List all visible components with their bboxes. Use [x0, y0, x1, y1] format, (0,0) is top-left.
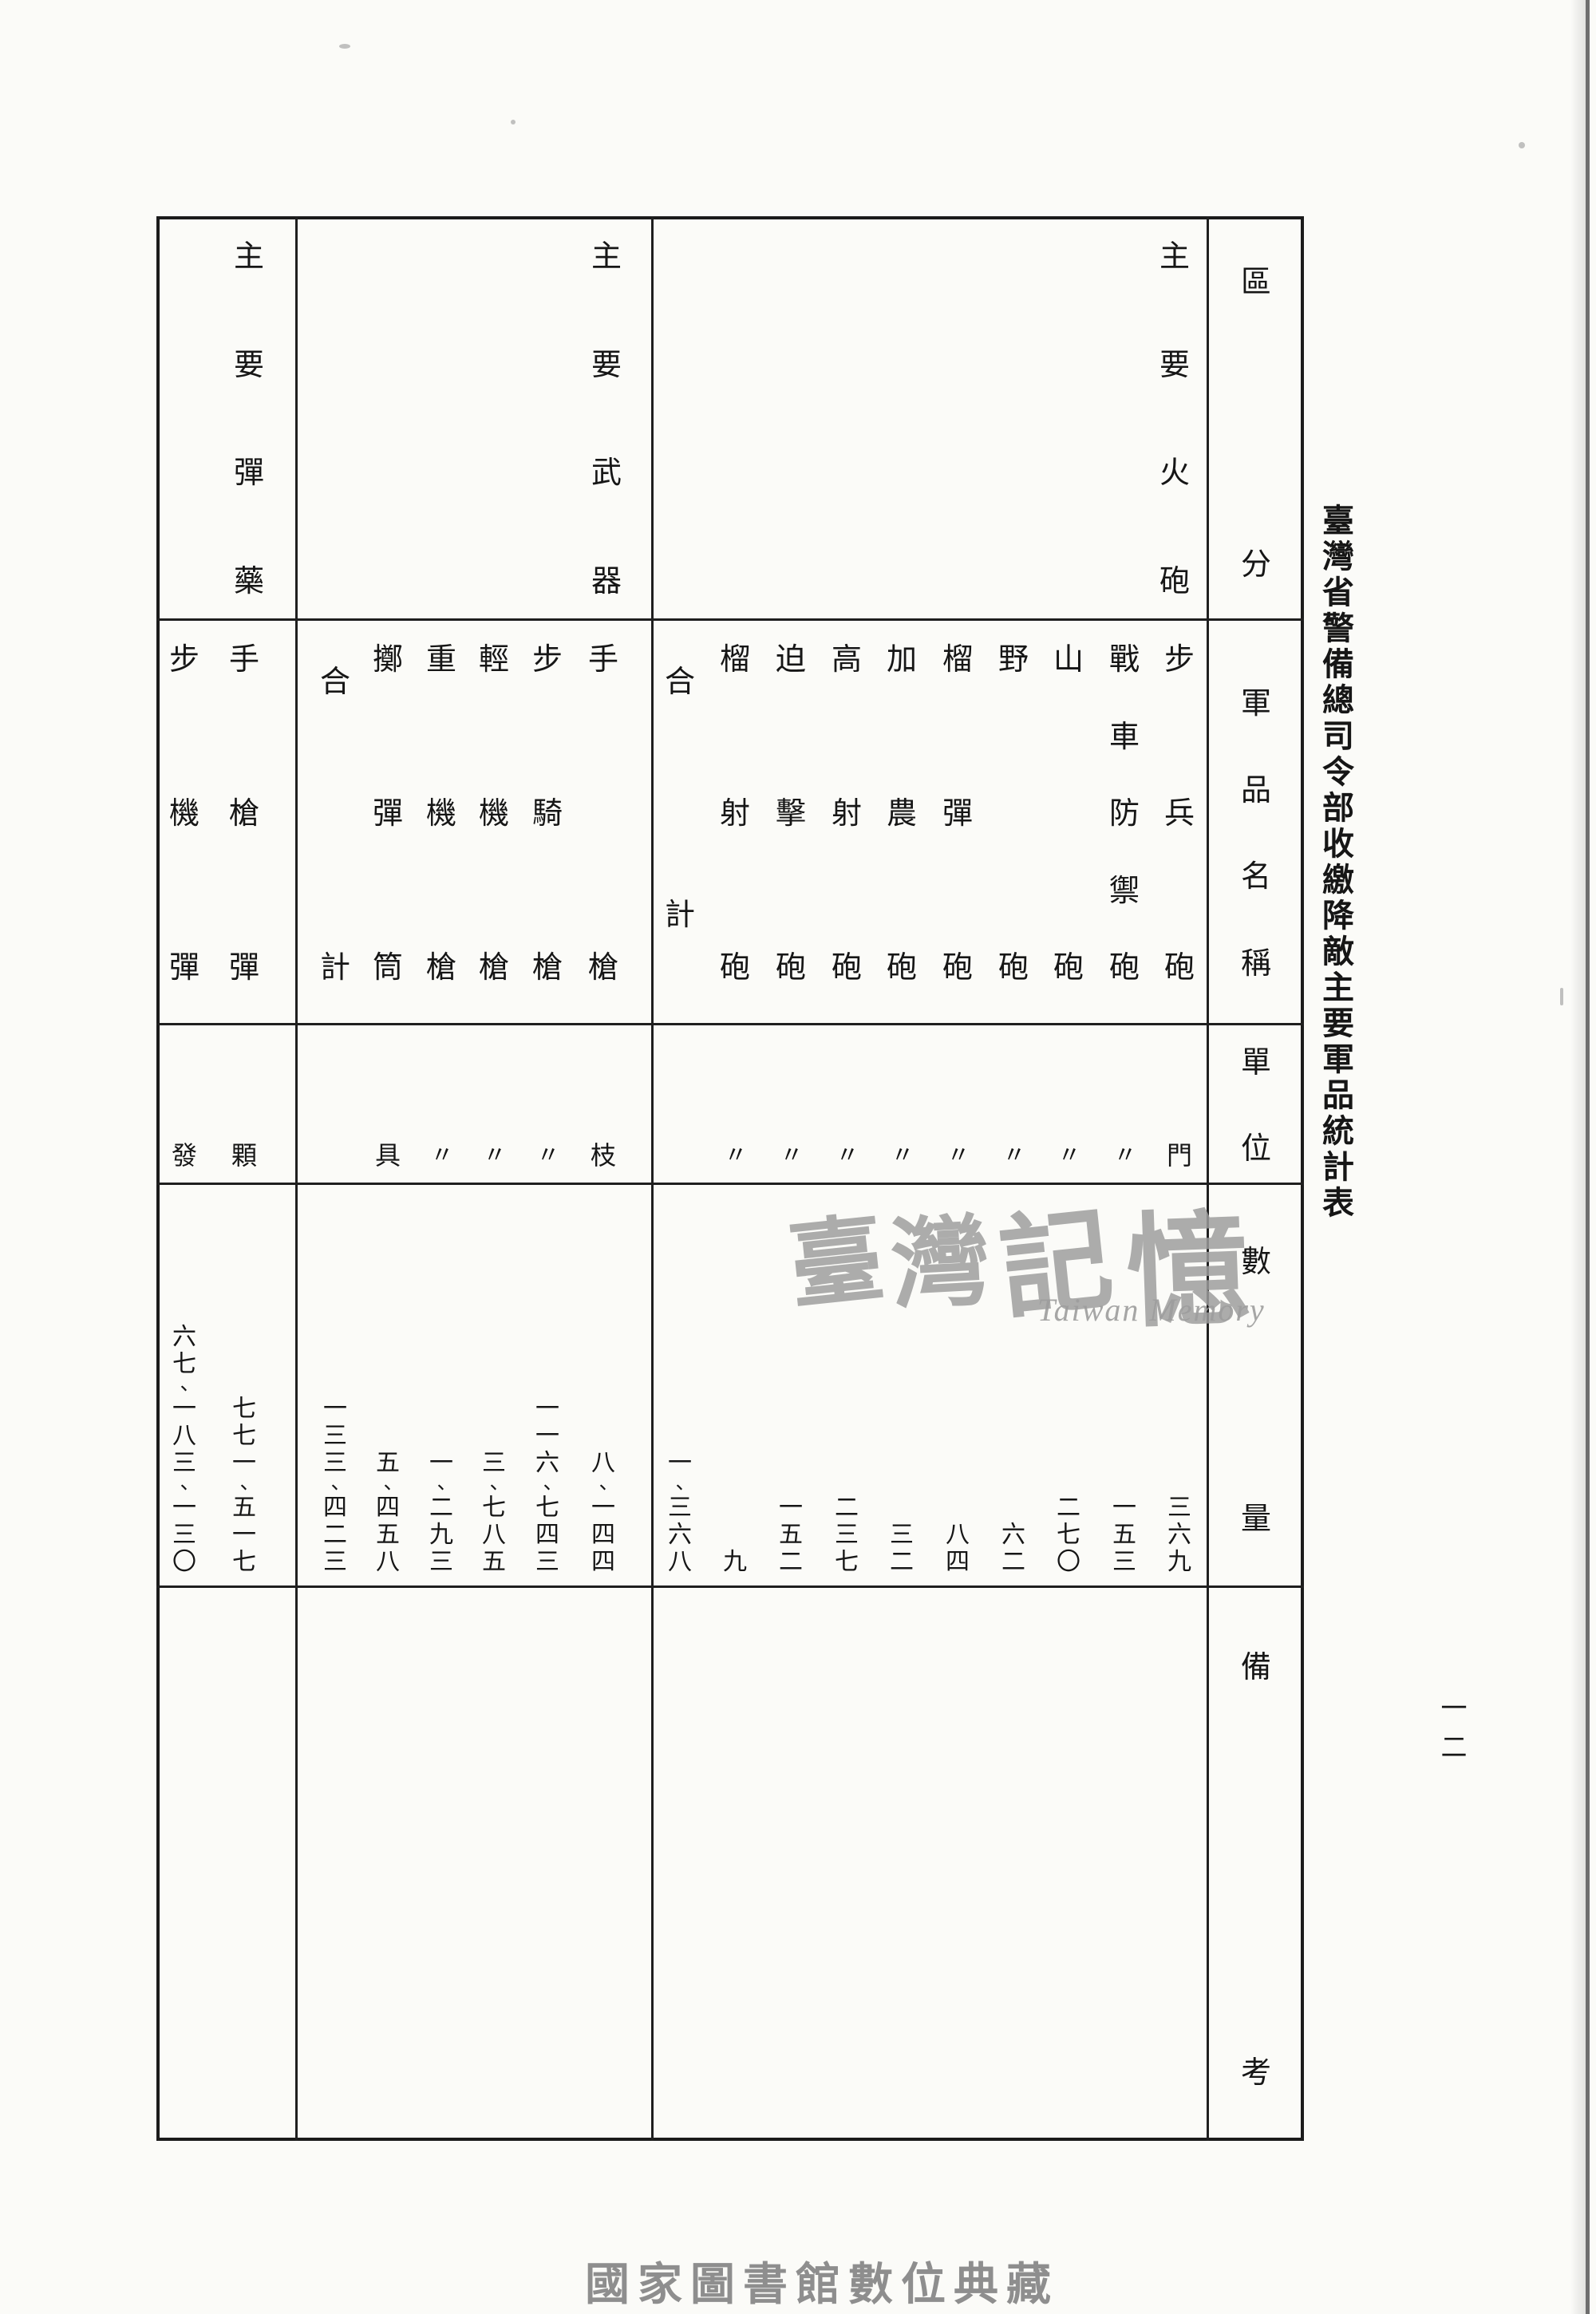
glyph: 計: [1322, 1149, 1354, 1185]
glyph: 手: [588, 645, 618, 675]
item-name: 山砲: [1051, 645, 1086, 983]
glyph: 數: [1241, 1246, 1271, 1278]
glyph: 兵: [1164, 799, 1195, 829]
glyph: 槍: [426, 953, 456, 983]
glyph: 彈: [229, 953, 259, 983]
item-name: 榴彈砲: [940, 645, 975, 983]
header-remarks: 備考: [1233, 1652, 1279, 2089]
glyph: 軍: [1322, 1041, 1354, 1077]
quantity: 一、三六八: [664, 1450, 696, 1576]
glyph: 砲: [1164, 953, 1195, 983]
quantity: 九: [719, 1549, 751, 1576]
unit-ditto-mark: 〃: [530, 1139, 565, 1171]
row-divider-category: [156, 618, 1304, 621]
glyph: 稱: [1241, 948, 1271, 980]
glyph: 彈: [942, 799, 973, 829]
glyph: 車: [1109, 722, 1140, 752]
glyph: 彈: [373, 799, 403, 829]
glyph: 槍: [479, 953, 509, 983]
group-label-weapons: 主要武器: [589, 242, 624, 597]
scan-speck: [511, 120, 516, 124]
glyph: 備: [1241, 1652, 1271, 1684]
glyph: 七: [232, 1396, 256, 1423]
glyph: 七: [482, 1495, 506, 1522]
glyph: 一: [1441, 1690, 1468, 1729]
unit-ditto-mark: 〃: [1107, 1139, 1142, 1171]
glyph: 器: [591, 567, 622, 597]
glyph: 省: [1322, 575, 1354, 610]
unit-mark: 門: [1162, 1139, 1197, 1171]
quantity: 六七、一八三、一三〇: [168, 1324, 200, 1576]
item-name: 擲彈筒: [370, 645, 405, 983]
glyph: 三: [1112, 1549, 1136, 1576]
glyph: 區: [1241, 267, 1271, 298]
glyph: 七: [232, 1423, 256, 1450]
glyph: 砲: [1109, 953, 1140, 983]
item-name: 迫擊砲: [773, 645, 808, 983]
glyph: 一: [232, 1522, 256, 1549]
item-name: 戰車防禦砲: [1107, 645, 1142, 983]
glyph: 、: [543, 1477, 563, 1495]
glyph: 武: [591, 458, 622, 488]
group-label-artillery: 主要火砲: [1157, 242, 1192, 597]
unit-ditto-mark: 〃: [424, 1139, 459, 1171]
row-divider-name: [156, 1023, 1304, 1025]
glyph: 八: [172, 1423, 196, 1450]
glyph: 軍: [1241, 688, 1271, 720]
glyph: 六: [1167, 1522, 1191, 1549]
unit-ditto-mark: 〃: [476, 1139, 512, 1171]
scan-speck: [1519, 142, 1525, 148]
column-divider: [1207, 216, 1209, 2141]
quantity: 三、七八五: [478, 1450, 510, 1576]
glyph: 榴: [720, 645, 750, 675]
glyph: 野: [998, 645, 1029, 675]
item-name: 野砲: [996, 645, 1031, 983]
item-name: 合計: [318, 667, 353, 983]
glyph: 令: [1322, 754, 1354, 790]
glyph: 槍: [532, 953, 563, 983]
glyph: 計: [665, 900, 695, 930]
quantity: 八四: [942, 1522, 974, 1576]
glyph: 四: [535, 1522, 559, 1549]
glyph: 五: [1112, 1522, 1136, 1549]
glyph: 槍: [588, 953, 618, 983]
glyph: 砲: [1053, 953, 1084, 983]
glyph: 六: [172, 1324, 196, 1351]
glyph: 五: [232, 1495, 256, 1522]
glyph: 要: [1322, 1005, 1354, 1041]
unit-ditto-mark: 〃: [884, 1139, 919, 1171]
glyph: 七: [1057, 1522, 1080, 1549]
item-name: 步騎槍: [530, 645, 565, 983]
row-divider-quantity: [156, 1585, 1304, 1588]
header-item-name: 軍品名稱: [1233, 688, 1279, 980]
glyph: 砲: [998, 953, 1029, 983]
glyph: 二: [323, 1522, 347, 1549]
glyph: 〇: [1057, 1549, 1080, 1576]
glyph: 七: [232, 1549, 256, 1576]
table-border: [156, 216, 1304, 2141]
glyph: 機: [479, 799, 509, 829]
glyph: 警: [1322, 610, 1354, 646]
group-label-ammunition: 主要彈藥: [231, 242, 267, 597]
unit-mark: 顆: [227, 1139, 262, 1171]
glyph: 騎: [532, 799, 563, 829]
unit-mark: 枝: [586, 1139, 621, 1171]
glyph: 擲: [373, 645, 403, 675]
glyph: 八: [668, 1549, 692, 1576]
glyph: 主: [234, 242, 264, 272]
glyph: 八: [482, 1522, 506, 1549]
glyph: 四: [376, 1495, 400, 1522]
glyph: 、: [239, 1477, 259, 1495]
glyph: 砲: [832, 953, 862, 983]
document-title: 臺灣省警備總司令部收繳降敵主要軍品統計表: [1320, 503, 1357, 1221]
item-name: 輕機槍: [476, 645, 512, 983]
glyph: 禦: [1109, 876, 1140, 906]
item-name: 步兵砲: [1162, 645, 1197, 983]
scan-speck: [339, 44, 350, 49]
glyph: 四: [591, 1522, 615, 1549]
item-name: 高射砲: [829, 645, 864, 983]
glyph: 九: [429, 1522, 453, 1549]
quantity: 五、四五八: [372, 1450, 404, 1576]
glyph: 砲: [942, 953, 973, 983]
quantity: 七七一、五一七: [228, 1396, 260, 1576]
unit-mark: 發: [167, 1139, 202, 1171]
glyph: 二: [1441, 1729, 1468, 1768]
item-name: 合計: [662, 667, 697, 930]
glyph: 要: [1159, 350, 1190, 381]
unit-ditto-mark: 〃: [717, 1139, 753, 1171]
glyph: 砲: [1159, 567, 1190, 597]
glyph: 合: [320, 667, 350, 697]
glyph: 司: [1322, 718, 1354, 754]
glyph: 、: [437, 1477, 456, 1495]
column-divider: [295, 216, 298, 2141]
item-name: 手槍: [586, 645, 621, 983]
glyph: 備: [1322, 646, 1354, 682]
glyph: 一: [1112, 1495, 1136, 1522]
glyph: 三: [890, 1522, 914, 1549]
glyph: 繳: [1322, 862, 1354, 898]
item-name: 加農砲: [884, 645, 919, 983]
glyph: 九: [723, 1549, 747, 1576]
glyph: 四: [946, 1549, 970, 1576]
glyph: 、: [489, 1477, 509, 1495]
glyph: 臺: [1322, 503, 1354, 539]
quantity: 一五二: [775, 1495, 807, 1576]
glyph: 三: [429, 1549, 453, 1576]
item-name: 重機槍: [424, 645, 459, 983]
glyph: 、: [675, 1477, 695, 1495]
glyph: 加: [887, 645, 917, 675]
glyph: 防: [1109, 799, 1140, 829]
unit-ditto-mark: 〃: [773, 1139, 808, 1171]
glyph: 三: [535, 1549, 559, 1576]
glyph: 步: [169, 645, 199, 675]
glyph: 一: [779, 1495, 803, 1522]
quantity: 一三三、四二三: [319, 1396, 351, 1576]
glyph: 一: [172, 1495, 196, 1522]
glyph: 輕: [479, 645, 509, 675]
glyph: 機: [426, 799, 456, 829]
item-name: 步機彈: [167, 645, 202, 983]
glyph: 五: [376, 1522, 400, 1549]
column-divider: [651, 216, 654, 2141]
glyph: 一: [172, 1396, 196, 1423]
unit-ditto-mark: 〃: [996, 1139, 1031, 1171]
glyph: 重: [426, 645, 456, 675]
glyph: 高: [832, 645, 862, 675]
unit-ditto-mark: 〃: [829, 1139, 864, 1171]
quantity: 一、二九三: [425, 1450, 457, 1576]
header-category: 區分: [1233, 267, 1279, 581]
glyph: 要: [234, 350, 264, 381]
glyph: 二: [779, 1549, 803, 1576]
glyph: 六: [1001, 1522, 1025, 1549]
glyph: 彈: [169, 953, 199, 983]
glyph: 射: [832, 799, 862, 829]
glyph: 、: [383, 1477, 403, 1495]
glyph: 敵: [1322, 934, 1354, 969]
glyph: 、: [330, 1477, 350, 1495]
glyph: 一: [535, 1396, 559, 1423]
glyph: 戰: [1109, 645, 1140, 675]
quantity: 六二: [997, 1522, 1029, 1576]
glyph: 六: [668, 1522, 692, 1549]
glyph: 品: [1322, 1077, 1354, 1113]
glyph: 三: [668, 1495, 692, 1522]
glyph: 、: [180, 1378, 199, 1396]
quantity: 一一六、七四三: [531, 1396, 563, 1576]
glyph: 砲: [720, 953, 750, 983]
quantity: 一五三: [1108, 1495, 1140, 1576]
glyph: 要: [591, 350, 622, 381]
glyph: 九: [1167, 1549, 1191, 1576]
glyph: 降: [1322, 898, 1354, 934]
glyph: 三: [835, 1522, 859, 1549]
glyph: 部: [1322, 790, 1354, 826]
glyph: 七: [535, 1495, 559, 1522]
header-quantity: 數量: [1233, 1246, 1279, 1535]
glyph: 筒: [373, 953, 403, 983]
item-name: 手槍彈: [227, 645, 262, 983]
quantity: 二三七: [831, 1495, 863, 1576]
page-edge-line: [1586, 0, 1590, 2314]
glyph: 一: [591, 1495, 615, 1522]
quantity: 二七〇: [1053, 1495, 1084, 1576]
glyph: 農: [887, 799, 917, 829]
glyph: 七: [835, 1549, 859, 1576]
glyph: 手: [229, 645, 259, 675]
glyph: 計: [320, 953, 350, 983]
glyph: 主: [591, 242, 622, 272]
glyph: 擊: [776, 799, 806, 829]
glyph: 二: [1001, 1549, 1025, 1576]
glyph: 灣: [1322, 539, 1354, 575]
glyph: 、: [598, 1477, 618, 1495]
glyph: 八: [946, 1522, 970, 1549]
glyph: 藥: [234, 567, 264, 597]
header-unit: 單位: [1233, 1047, 1279, 1165]
glyph: 一: [323, 1396, 347, 1423]
glyph: 考: [1241, 2057, 1271, 2089]
unit-ditto-mark: 〃: [1051, 1139, 1086, 1171]
glyph: 〇: [172, 1549, 196, 1576]
glyph: 迫: [776, 645, 806, 675]
unit-ditto-mark: 〃: [940, 1139, 975, 1171]
glyph: 表: [1322, 1185, 1354, 1221]
glyph: 砲: [887, 953, 917, 983]
glyph: 步: [532, 645, 563, 675]
unit-mark: 具: [370, 1139, 405, 1171]
glyph: 位: [1241, 1133, 1271, 1165]
glyph: 三: [323, 1423, 347, 1450]
glyph: 、: [180, 1477, 199, 1495]
glyph: 主: [1159, 242, 1190, 272]
glyph: 三: [172, 1522, 196, 1549]
glyph: 射: [720, 799, 750, 829]
glyph: 總: [1322, 682, 1354, 718]
quantity: 八、一四四: [587, 1450, 619, 1576]
page-number: 一二: [1436, 1690, 1472, 1768]
glyph: 名: [1241, 861, 1271, 893]
quantity: 三二: [886, 1522, 918, 1576]
scan-speck: [1560, 988, 1563, 1005]
glyph: 步: [1164, 645, 1195, 675]
quantity: 三六九: [1163, 1495, 1195, 1576]
glyph: 四: [323, 1495, 347, 1522]
scanned-document-page: { "title": "臺灣省警備總司令部收繳降敵主要軍品統計表", "page…: [0, 0, 1596, 2314]
glyph: 一: [535, 1423, 559, 1450]
glyph: 二: [1057, 1495, 1080, 1522]
glyph: 三: [1167, 1495, 1191, 1522]
glyph: 分: [1241, 549, 1271, 581]
glyph: 槍: [229, 799, 259, 829]
glyph: 單: [1241, 1047, 1271, 1079]
glyph: 四: [591, 1549, 615, 1576]
glyph: 山: [1053, 645, 1084, 675]
glyph: 八: [376, 1549, 400, 1576]
row-divider-unit: [156, 1183, 1304, 1185]
glyph: 榴: [942, 645, 973, 675]
glyph: 砲: [776, 953, 806, 983]
glyph: 二: [835, 1495, 859, 1522]
glyph: 二: [429, 1495, 453, 1522]
glyph: 五: [482, 1549, 506, 1576]
glyph: 品: [1241, 775, 1271, 807]
glyph: 三: [323, 1549, 347, 1576]
page-edge-shadow: [1570, 0, 1586, 2314]
archive-footer: 國家圖書館數位典藏: [585, 2249, 1059, 2313]
glyph: 彈: [234, 458, 264, 488]
glyph: 量: [1241, 1503, 1271, 1535]
glyph: 火: [1159, 458, 1190, 488]
glyph: 收: [1322, 826, 1354, 862]
glyph: 二: [890, 1549, 914, 1576]
glyph: 機: [169, 799, 199, 829]
glyph: 五: [779, 1522, 803, 1549]
glyph: 主: [1322, 969, 1354, 1005]
glyph: 合: [665, 667, 695, 697]
glyph: 統: [1322, 1113, 1354, 1149]
item-name: 榴射砲: [717, 645, 753, 983]
